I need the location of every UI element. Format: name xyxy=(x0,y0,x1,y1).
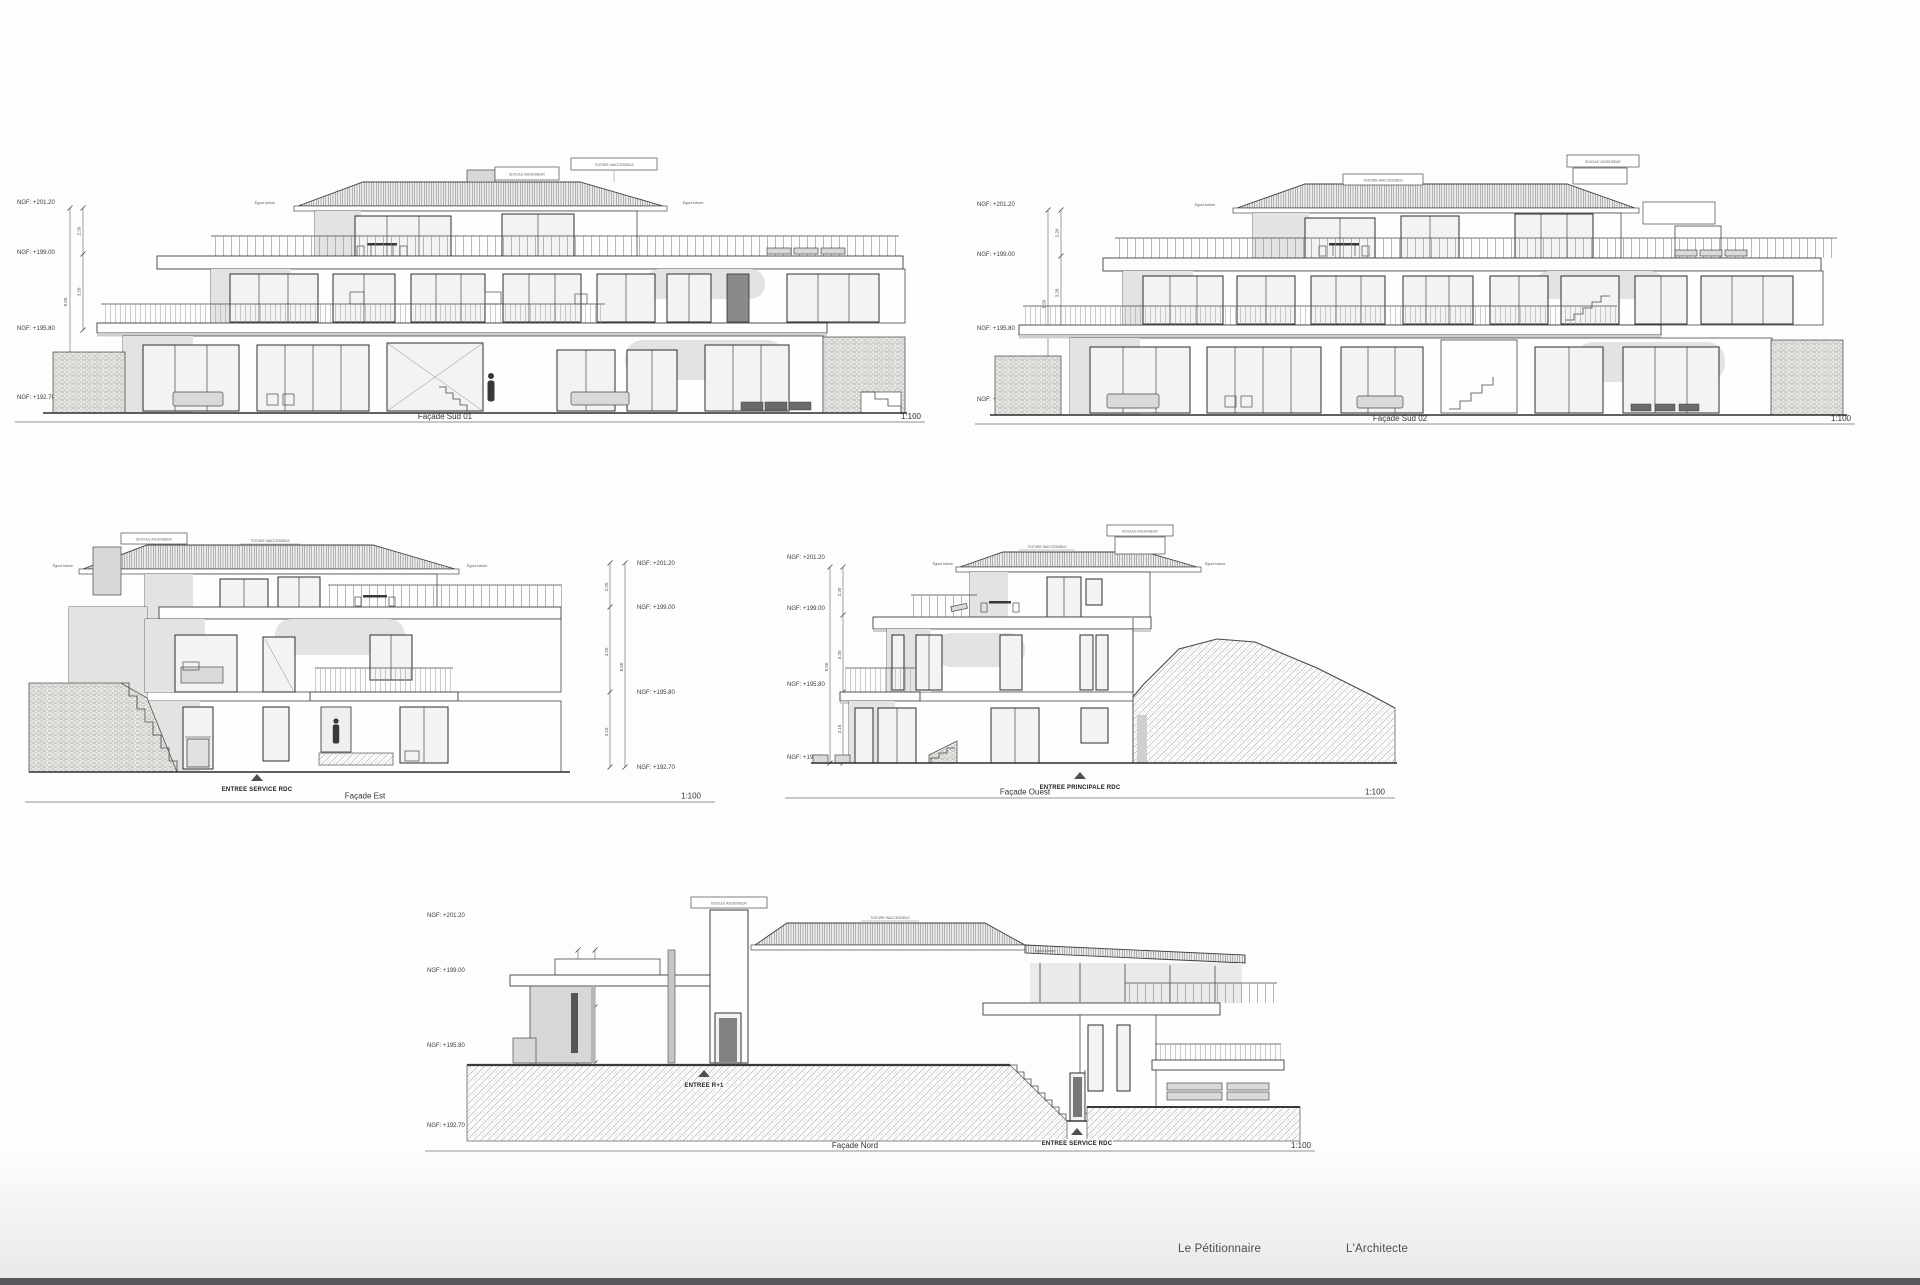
floor-r1 xyxy=(97,269,905,337)
ground-floor xyxy=(123,336,823,413)
entry-label: ENTREE R+1 xyxy=(684,1083,724,1089)
facade-sud-02-drawing: NGF: +201.20 NGF: +199.00 NGF: +195.80 N… xyxy=(975,140,1855,432)
entry-label: ENTREE SERVICE RDC xyxy=(222,787,293,793)
ngf-labels: NGF: +201.20 NGF: +199.00 NGF: +195.80 N… xyxy=(787,555,826,761)
annotation-egout: Égout toiture xyxy=(683,200,703,205)
ground-floor xyxy=(813,701,1133,763)
annotation-egout: Égout toiture xyxy=(255,200,275,205)
annotation-toiture: TOITURE INACCESSIBLE xyxy=(594,163,634,167)
drawing-title: Façade Sud 02 xyxy=(1373,414,1428,423)
roof: EDICULE ASCENSEUR TOITURE INACCESSIBLE É… xyxy=(933,525,1226,572)
ngf-label: NGF: +192.70 xyxy=(637,765,676,771)
facade-sud-02-svg: NGF: +201.20 NGF: +199.00 NGF: +195.80 N… xyxy=(975,140,1855,432)
dim-label: 3.10 xyxy=(837,724,842,733)
entry-label: ENTREE SERVICE RDC xyxy=(1042,1141,1113,1147)
bottom-fade xyxy=(0,1150,1920,1278)
annotation-egout: Égout toiture xyxy=(53,563,73,568)
dim-label: 2.20 xyxy=(604,582,609,591)
dimension-lines: 8.50 2.20 3.20 3.10 xyxy=(824,565,846,766)
annotation-egout: Égout toiture xyxy=(1035,948,1055,953)
floor-r1 xyxy=(840,629,1133,704)
facade-nord-drawing: NGF: +201.20 NGF: +199.00 NGF: +195.80 N… xyxy=(425,895,1315,1165)
ngf-label: NGF: +199.00 xyxy=(977,252,1016,258)
dim-label: 3.20 xyxy=(837,650,842,659)
ngf-labels: NGF: +201.20 NGF: +199.00 NGF: +195.80 N… xyxy=(637,561,676,771)
drawing-title: Façade Est xyxy=(345,792,386,801)
annotation-edicule: EDICULE ASCENSEUR xyxy=(711,902,747,906)
facade-sud-01-svg: NGF: +201.20 NGF: +199.00 NGF: +195.80 N… xyxy=(15,140,925,430)
ground-floor xyxy=(1070,338,1772,415)
ngf-labels: NGF: +201.20 NGF: +199.00 NGF: +195.80 N… xyxy=(427,913,466,1129)
entry-label: ENTREE PRINCIPALE RDC xyxy=(1040,785,1121,791)
annotation-toiture: TOITURE INACCESSIBLE xyxy=(1363,179,1403,183)
dim-label: 2.20 xyxy=(1055,228,1060,237)
drawing-sheet: NGF: +201.20 NGF: +199.00 NGF: +195.80 N… xyxy=(0,0,1920,1285)
dim-label: 3.10 xyxy=(604,727,609,736)
drawing-title: Façade Ouest xyxy=(1000,788,1051,797)
penthouse xyxy=(911,572,1150,617)
facade-sud-01-drawing: NGF: +201.20 NGF: +199.00 NGF: +195.80 N… xyxy=(15,140,925,430)
drawing-scale: 1:100 xyxy=(1831,414,1852,423)
dim-label: 8.50 xyxy=(824,662,829,671)
annotation-edicule: EDICULE ASCENSEUR xyxy=(1585,160,1621,164)
dimension-lines: 2.20 3.20 3.10 8.50 xyxy=(604,561,628,770)
ngf-labels: NGF: +201.20 NGF: +199.00 NGF: +195.80 N… xyxy=(17,200,56,401)
ngf-label: NGF: +201.20 xyxy=(787,555,826,561)
ngf-label: NGF: +201.20 xyxy=(637,561,676,567)
ngf-label: NGF: +195.80 xyxy=(977,326,1016,332)
annotation-toiture: TOITURE INACCESSIBLE xyxy=(250,539,290,543)
caption: Façade Nord 1:100 xyxy=(425,1141,1315,1151)
drawing-scale: 1:100 xyxy=(901,412,922,421)
annotation-toiture: TOITURE INACCESSIBLE xyxy=(1027,545,1067,549)
annotation-egout: Égout toiture xyxy=(933,561,953,566)
ngf-label: NGF: +192.70 xyxy=(427,1123,466,1129)
drawing-scale: 1:100 xyxy=(681,792,702,801)
ngf-label: NGF: +199.00 xyxy=(787,606,826,612)
drawing-scale: 1:100 xyxy=(1365,788,1386,797)
left-structure xyxy=(510,950,744,1063)
facade-ouest-svg: NGF: +201.20 NGF: +199.00 NGF: +195.80 N… xyxy=(785,515,1410,815)
ngf-label: NGF: +195.80 xyxy=(637,690,676,696)
facade-ouest-drawing: NGF: +201.20 NGF: +199.00 NGF: +195.80 N… xyxy=(785,515,1410,815)
dim-label: 3.20 xyxy=(1055,288,1060,297)
annotation-egout: Égout toiture xyxy=(467,563,487,568)
floor-r1 xyxy=(1019,271,1823,339)
entry-marker: ENTREE PRINCIPALE RDC xyxy=(1040,772,1121,791)
annotation-edicule: EDICULE ASCENSEUR xyxy=(1122,530,1158,534)
annotation-toiture: TOITURE INACCESSIBLE xyxy=(870,916,910,920)
annotation-egout: Égout toiture xyxy=(1195,202,1215,207)
floor-r1 xyxy=(145,619,561,708)
drawing-title: Façade Sud 01 xyxy=(418,412,473,421)
roof: EDICULE ASCENSEUR TOITURE INACCESSIBLE É… xyxy=(255,158,704,211)
facade-nord-svg: NGF: +201.20 NGF: +199.00 NGF: +195.80 N… xyxy=(425,895,1315,1165)
facade-est-drawing: EDICULE ASCENSEUR TOITURE INACCESSIBLE É… xyxy=(25,515,715,810)
dim-label: 2.20 xyxy=(77,226,82,235)
ngf-label: NGF: +195.80 xyxy=(787,682,826,688)
terrain-hatch xyxy=(1133,618,1395,763)
annotation-egout: Égout toiture xyxy=(1205,561,1225,566)
stone-wall xyxy=(29,683,177,772)
annotation-edicule: EDICULE ASCENSEUR xyxy=(136,538,172,542)
roof-terrace xyxy=(1103,238,1837,271)
ground-floor xyxy=(145,701,561,772)
ngf-label: NGF: +199.00 xyxy=(427,968,466,974)
dim-label: 8.50 xyxy=(619,662,624,671)
ngf-label: NGF: +199.00 xyxy=(17,250,56,256)
dim-label: 3.20 xyxy=(604,647,609,656)
bottom-bar xyxy=(0,1278,1920,1285)
drawing-scale: 1:100 xyxy=(1291,1141,1312,1150)
roof-terrace xyxy=(157,236,903,269)
entry-marker: ENTREE SERVICE RDC xyxy=(222,774,293,793)
terrain-section xyxy=(467,1065,1300,1141)
drawing-title: Façade Nord xyxy=(832,1141,878,1150)
caption: Façade Est 1:100 xyxy=(25,792,715,803)
ngf-label: NGF: +201.20 xyxy=(17,200,56,206)
dim-label: 3.20 xyxy=(77,287,82,296)
ngf-label: NGF: +195.80 xyxy=(427,1043,466,1049)
annotation-edicule: EDICULE ASCENSEUR xyxy=(509,173,545,177)
ngf-label: NGF: +201.20 xyxy=(977,202,1016,208)
ngf-label: NGF: +192.70 xyxy=(17,395,56,401)
ngf-label: NGF: +195.80 xyxy=(17,326,56,332)
facade-est-svg: EDICULE ASCENSEUR TOITURE INACCESSIBLE É… xyxy=(25,515,715,810)
dim-label: 2.20 xyxy=(837,587,842,596)
ngf-label: NGF: +199.00 xyxy=(637,605,676,611)
petitioner-label: Le Pétitionnaire xyxy=(1178,1243,1261,1255)
dim-label: 8.50 xyxy=(63,297,68,306)
architect-label: L'Architecte xyxy=(1346,1243,1408,1255)
ngf-label: NGF: +201.20 xyxy=(427,913,466,919)
